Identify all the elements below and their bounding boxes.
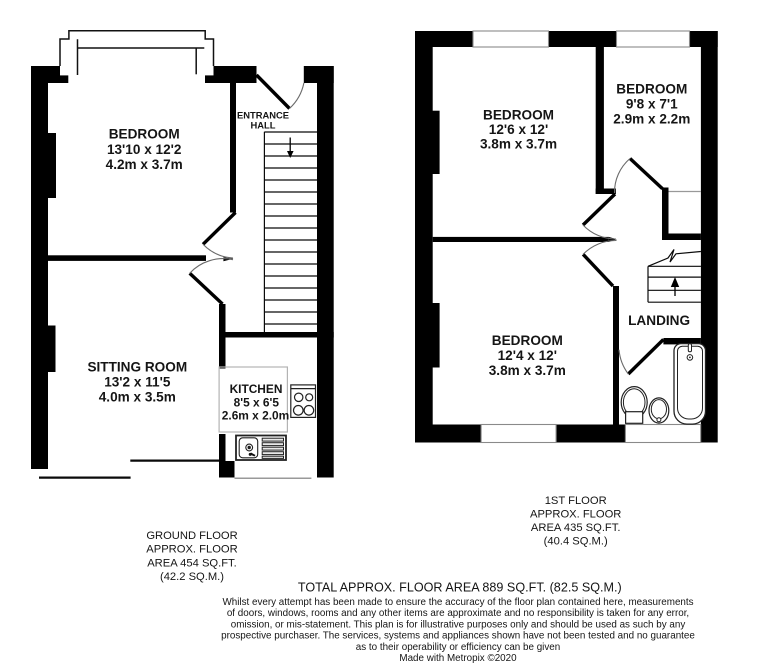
svg-text:APPROX. FLOOR: APPROX. FLOOR (530, 509, 621, 521)
svg-text:BEDROOM: BEDROOM (109, 126, 180, 141)
svg-text:AREA 435 SQ.FT.: AREA 435 SQ.FT. (531, 522, 621, 534)
svg-text:Made with Metropix ©2020: Made with Metropix ©2020 (399, 653, 517, 664)
svg-text:as to their operability or eff: as to their operability or efficiency ca… (356, 642, 560, 653)
svg-text:TOTAL APPROX. FLOOR AREA 889 S: TOTAL APPROX. FLOOR AREA 889 SQ.FT. (82.… (298, 581, 622, 595)
svg-text:of doors, windows, rooms and a: of doors, windows, rooms and any other i… (227, 608, 689, 619)
svg-text:2.9m x 2.2m: 2.9m x 2.2m (613, 112, 690, 127)
svg-text:12'6 x 12': 12'6 x 12' (489, 122, 548, 137)
svg-text:KITCHEN: KITCHEN (230, 382, 283, 396)
svg-text:omission, or mis-statement. Th: omission, or mis-statement. This plan is… (231, 619, 686, 630)
svg-text:Whilst every attempt has been: Whilst every attempt has been made to en… (222, 597, 693, 608)
svg-text:APPROX. FLOOR: APPROX. FLOOR (146, 544, 237, 556)
svg-text:1ST FLOOR: 1ST FLOOR (545, 495, 607, 507)
svg-text:BEDROOM: BEDROOM (616, 81, 687, 96)
svg-text:(40.4 SQ.M.): (40.4 SQ.M.) (544, 535, 608, 547)
svg-text:3.8m x 3.7m: 3.8m x 3.7m (489, 363, 566, 378)
svg-text:AREA 454 SQ.FT.: AREA 454 SQ.FT. (147, 558, 237, 570)
svg-text:13'2 x 11'5: 13'2 x 11'5 (104, 374, 171, 389)
svg-text:13'10 x 12'2: 13'10 x 12'2 (107, 142, 182, 157)
svg-text:4.2m x 3.7m: 4.2m x 3.7m (106, 157, 183, 172)
svg-text:LANDING: LANDING (628, 313, 690, 328)
svg-text:BEDROOM: BEDROOM (483, 108, 554, 123)
svg-text:BEDROOM: BEDROOM (492, 333, 563, 348)
svg-text:4.0m x 3.5m: 4.0m x 3.5m (99, 390, 176, 405)
svg-text:3.8m x 3.7m: 3.8m x 3.7m (480, 137, 557, 152)
svg-text:2.6m x 2.0m: 2.6m x 2.0m (222, 408, 289, 422)
svg-text:HALL: HALL (251, 120, 276, 131)
svg-text:SITTING ROOM: SITTING ROOM (87, 360, 187, 375)
svg-text:GROUND FLOOR: GROUND FLOOR (146, 530, 237, 542)
svg-text:9'8 x 7'1: 9'8 x 7'1 (626, 96, 678, 111)
svg-text:(42.2 SQ.M.): (42.2 SQ.M.) (160, 571, 224, 583)
svg-text:prospective purchaser. The ser: prospective purchaser. The services, sys… (221, 631, 695, 642)
svg-text:12'4 x 12': 12'4 x 12' (498, 348, 557, 363)
